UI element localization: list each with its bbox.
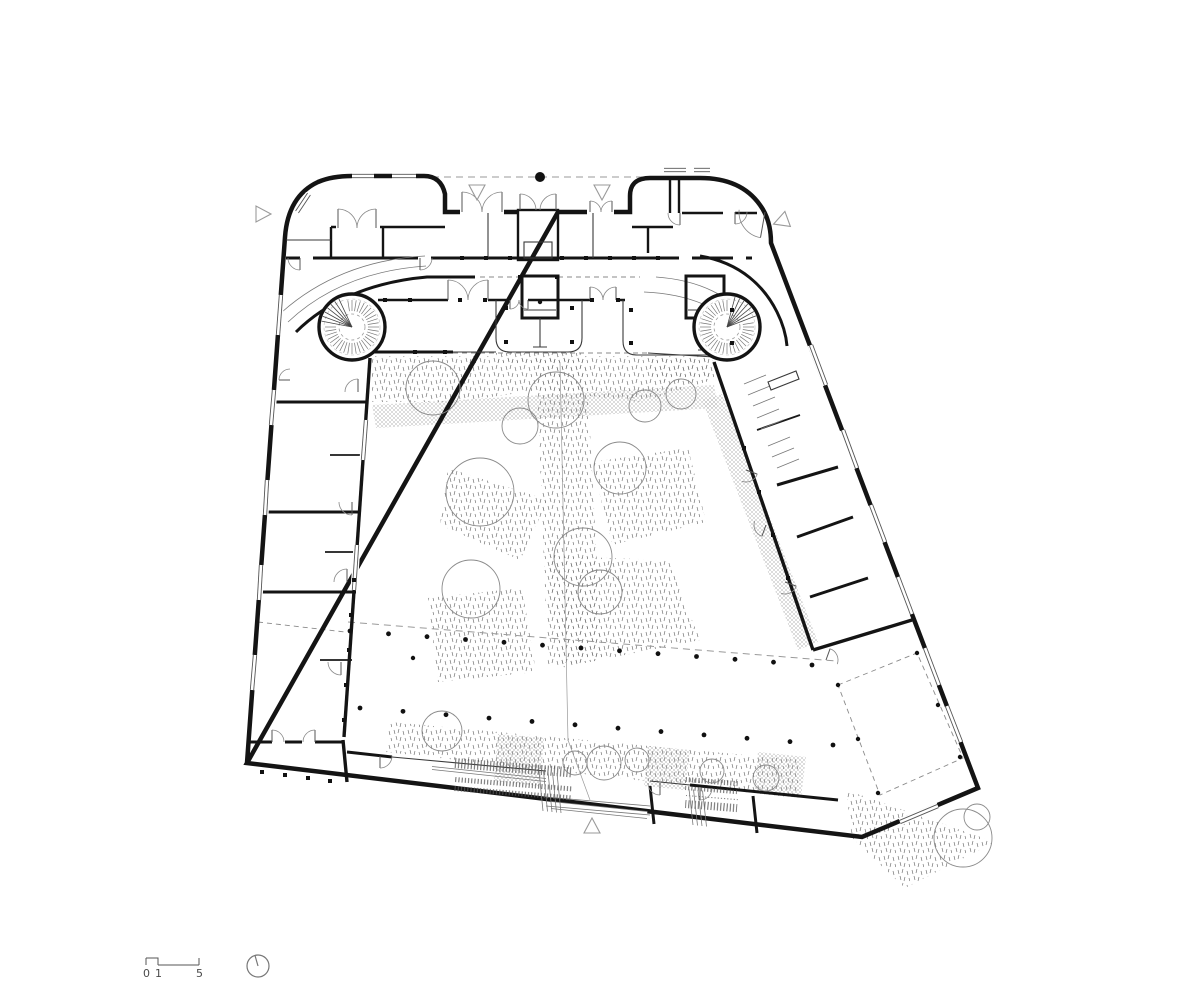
mullion-tick	[742, 446, 746, 450]
planting-bed	[496, 353, 582, 363]
planting-bed	[648, 357, 718, 382]
door-leaf	[826, 649, 830, 660]
courtyard-planting	[372, 353, 995, 888]
entrance-arrow-icon	[469, 185, 485, 200]
mullion-tick	[508, 256, 512, 260]
entrance-arrow-icon	[594, 185, 610, 200]
door-leaf	[760, 212, 765, 238]
mullion-tick	[555, 275, 559, 279]
door-swing-arc	[540, 194, 556, 210]
window-whiteout	[871, 505, 885, 542]
mullion-tick	[408, 298, 412, 302]
column-dot	[540, 643, 545, 648]
planting-bed	[548, 556, 700, 668]
bench-fixture	[768, 371, 799, 390]
door-swing-arc	[603, 287, 616, 300]
canopy-outline-dashed	[838, 653, 963, 795]
column-dot	[579, 646, 584, 651]
mullion-tick	[283, 773, 287, 777]
column-dot	[358, 706, 363, 711]
door-swing-arc	[345, 379, 358, 392]
flag-column-dot	[535, 172, 545, 182]
mullion-tick	[608, 256, 612, 260]
paved-path	[644, 746, 690, 790]
column-dot	[411, 656, 415, 660]
mullion-tick	[352, 578, 356, 582]
column-dot	[530, 719, 535, 724]
entrance-arrow-icon	[771, 211, 791, 231]
column-dot	[771, 660, 776, 665]
column-dot	[617, 648, 622, 653]
mullion-tick	[656, 256, 660, 260]
floor-plan-canvas: { "title": "ground-floor-plan", "colors"…	[0, 0, 1201, 1000]
column-dot	[444, 712, 449, 717]
toilet-stalls	[744, 375, 783, 429]
floor-plan-drawing: 0 1 5	[0, 0, 1201, 1000]
mullion-tick	[730, 308, 734, 312]
column-dot	[386, 631, 391, 636]
column-dot	[831, 743, 836, 748]
mullion-tick	[518, 275, 522, 279]
column-dot	[745, 736, 750, 741]
scale-bar: 0 1 5	[143, 958, 203, 980]
window-whiteout	[898, 577, 912, 614]
planting-bed	[440, 468, 548, 560]
column-dot	[463, 637, 468, 642]
column-dot	[958, 755, 962, 759]
scale-label-0: 0	[143, 967, 150, 980]
column-dot	[876, 791, 880, 795]
center-canopy	[496, 300, 582, 352]
window-whiteout	[843, 430, 857, 468]
column-dot	[856, 737, 860, 741]
center-core	[522, 276, 558, 318]
column-dot	[538, 300, 542, 304]
column-dot	[936, 703, 940, 707]
north-arrow-needle	[255, 956, 258, 967]
mullion-tick	[443, 350, 447, 354]
door-swing-arc	[668, 213, 680, 225]
column-dot	[573, 722, 578, 727]
mullion-tick	[616, 298, 620, 302]
terrace-bench	[685, 795, 738, 812]
column-dot	[656, 651, 661, 656]
column-dot	[425, 634, 430, 639]
column-dot	[502, 640, 507, 645]
left-wing-partitions	[259, 402, 368, 592]
mullion-tick	[260, 770, 264, 774]
tree-canopy	[964, 804, 990, 830]
mullion-tick	[383, 298, 387, 302]
north-indicator-icon	[247, 955, 269, 977]
entrance-arrow-icon	[256, 206, 271, 222]
door-swing-arc	[510, 300, 519, 309]
planting-bed	[428, 588, 536, 682]
mullion-tick	[757, 490, 761, 494]
mullion-tick	[460, 256, 464, 260]
mullion-tick	[584, 256, 588, 260]
mullion-tick	[484, 256, 488, 260]
mullion-tick	[458, 298, 462, 302]
mullion-tick	[771, 533, 775, 537]
mullion-tick	[570, 306, 574, 310]
mullion-tick	[306, 776, 310, 780]
legend: 0 1 5	[143, 955, 269, 980]
mullion-tick	[344, 683, 348, 687]
mullion-tick	[504, 340, 508, 344]
scale-label-5: 5	[196, 967, 203, 980]
column-dot	[694, 654, 699, 659]
door-swing-arc	[830, 649, 838, 664]
mullion-tick	[570, 340, 574, 344]
column-dot	[788, 739, 793, 744]
column-dot	[401, 709, 406, 714]
mullion-tick	[786, 576, 790, 580]
scale-label-1: 1	[155, 967, 162, 980]
entrance-arrow-icon	[584, 818, 600, 833]
door-swing-arc	[357, 209, 376, 228]
window-whiteout	[925, 648, 939, 685]
door-swing-arc	[338, 209, 357, 228]
scale-bar-glyph	[146, 958, 199, 965]
door-swing-arc	[448, 280, 468, 300]
door-swing-arc	[279, 369, 290, 380]
paved-path	[494, 734, 544, 786]
column-dot	[810, 663, 815, 668]
mullion-tick	[632, 256, 636, 260]
door-swing-arc	[468, 280, 488, 300]
mullion-tick	[590, 298, 594, 302]
door-swing-arc	[520, 194, 536, 210]
door-swing-arc	[334, 569, 347, 582]
site-column-dot	[535, 172, 545, 182]
right-lobe-partitions	[632, 180, 757, 253]
column-dot	[915, 651, 919, 655]
column-dot	[702, 733, 707, 738]
mullion-tick	[483, 298, 487, 302]
mullion-tick	[413, 350, 417, 354]
window-whiteout	[811, 345, 826, 385]
center-core-stem	[524, 310, 556, 347]
mullion-tick	[560, 256, 564, 260]
mullion-tick	[342, 718, 346, 722]
column-dot	[348, 629, 353, 634]
mullion-tick	[328, 779, 332, 783]
mullion-tick	[504, 306, 508, 310]
mullion-tick	[349, 613, 353, 617]
column-dot	[733, 657, 738, 662]
mullion-tick	[629, 308, 633, 312]
door-swing-arc	[288, 258, 300, 270]
column-dot	[836, 683, 840, 687]
column-dot	[487, 716, 492, 721]
hall-dashed-line	[258, 622, 345, 632]
column-dot	[616, 726, 621, 731]
toilet-stalls	[768, 437, 799, 468]
planting-bed	[592, 448, 706, 545]
south-wing-partitions-east	[650, 786, 757, 833]
mullion-tick	[629, 341, 633, 345]
window-whiteout	[947, 706, 961, 742]
mullion-tick	[347, 648, 351, 652]
door-swing-arc	[328, 662, 341, 675]
mullion-tick	[730, 341, 734, 345]
column-dot	[659, 729, 664, 734]
